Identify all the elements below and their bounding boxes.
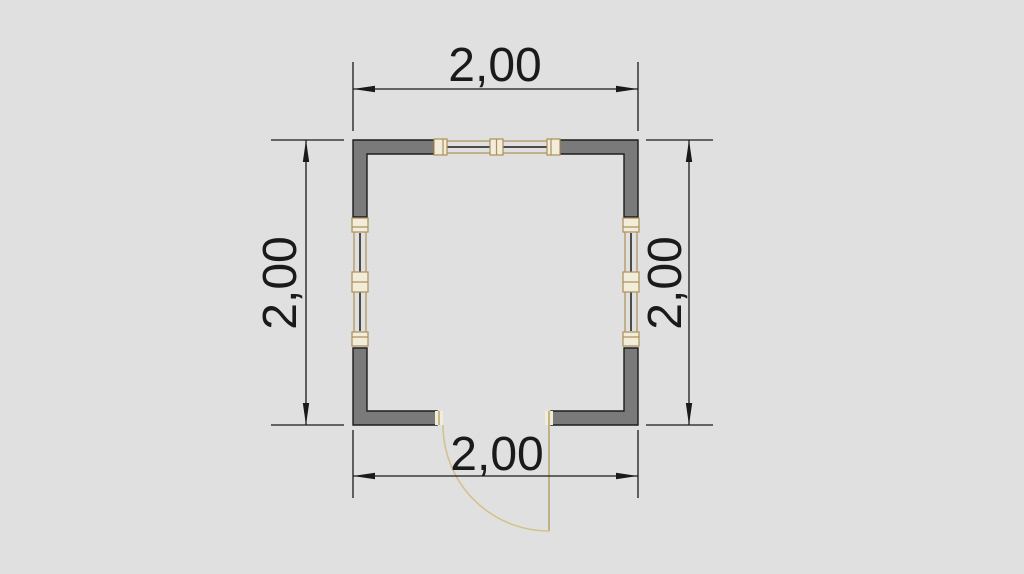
window-top	[434, 139, 560, 155]
dim-right-label: 2,00	[639, 236, 692, 329]
window-top-cap-left	[434, 139, 447, 155]
dim-top-label: 2,00	[448, 39, 541, 92]
window-left-cap-top	[352, 218, 368, 232]
window-right-cap-top	[623, 218, 639, 232]
window-top-cap-right	[547, 139, 560, 155]
floor-plan-page: 2,00 2,00 2,00 2,00	[0, 0, 1024, 574]
window-right	[623, 218, 639, 346]
floor-plan-canvas: 2,00 2,00 2,00 2,00	[0, 0, 1024, 574]
window-right-cap-bottom	[623, 332, 639, 346]
window-left	[352, 218, 368, 346]
dim-left-label: 2,00	[254, 236, 307, 329]
window-left-cap-bottom	[352, 332, 368, 346]
dim-bottom-label: 2,00	[450, 428, 543, 481]
